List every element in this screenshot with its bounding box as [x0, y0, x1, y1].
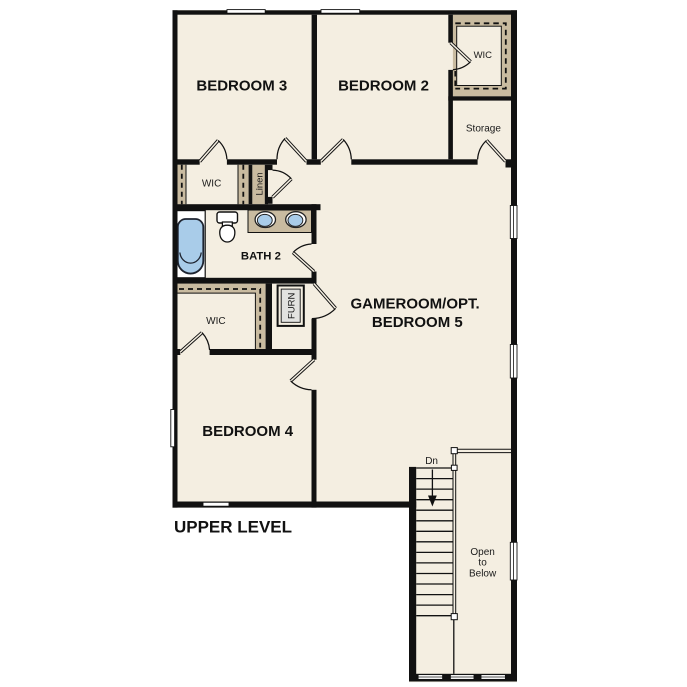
svg-text:Linen: Linen [254, 172, 265, 195]
svg-text:BEDROOM 5: BEDROOM 5 [372, 314, 463, 331]
svg-text:UPPER LEVEL: UPPER LEVEL [174, 517, 292, 536]
svg-text:Storage: Storage [466, 123, 501, 134]
svg-text:BEDROOM 2: BEDROOM 2 [338, 78, 429, 95]
svg-text:BATH 2: BATH 2 [241, 251, 281, 263]
svg-text:Below: Below [469, 569, 497, 580]
svg-text:WIC: WIC [202, 179, 221, 190]
svg-text:WIC: WIC [206, 316, 225, 327]
svg-text:BEDROOM 3: BEDROOM 3 [196, 78, 287, 95]
svg-text:to: to [478, 557, 487, 568]
svg-text:WIC: WIC [474, 50, 493, 61]
svg-text:Dn: Dn [425, 456, 438, 467]
svg-text:BEDROOM 4: BEDROOM 4 [202, 423, 294, 440]
svg-text:FURN: FURN [286, 292, 297, 319]
svg-text:Open: Open [470, 547, 494, 558]
svg-text:GAMEROOM/OPT.: GAMEROOM/OPT. [351, 296, 480, 313]
